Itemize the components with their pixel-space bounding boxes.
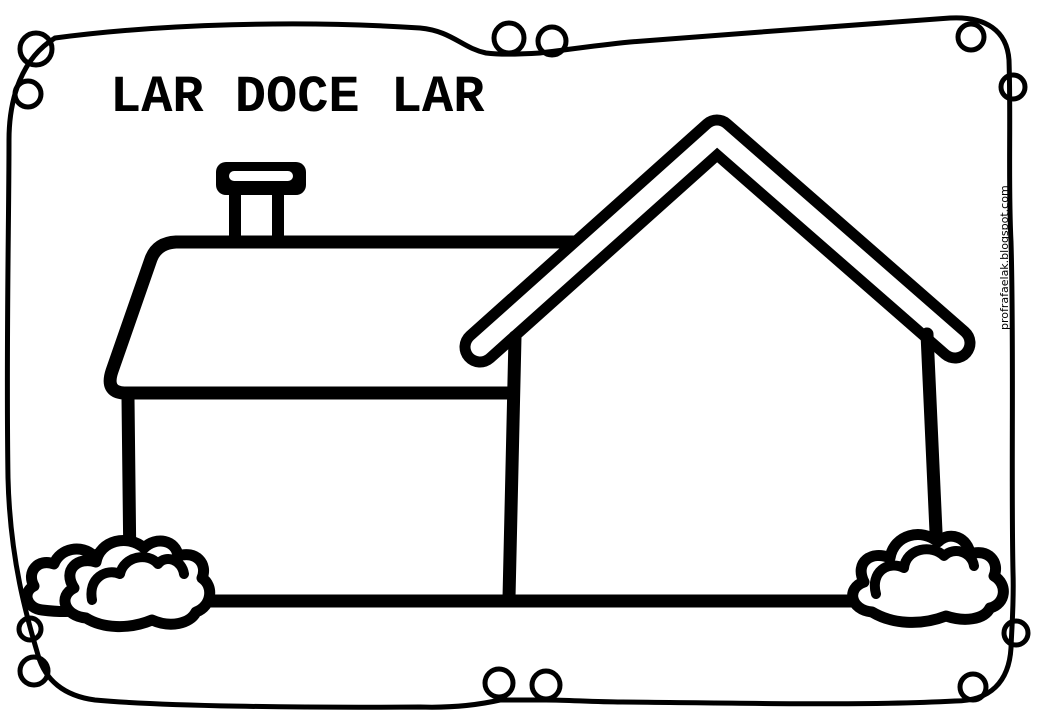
border-loop-right-top <box>1001 75 1025 99</box>
border-loop-top-left-2 <box>15 81 41 107</box>
house-drawing <box>27 135 1003 627</box>
chimney <box>216 162 306 246</box>
watermark-credit: profrafaelak.blogspot.com <box>998 148 1013 330</box>
border-loop-top-left-1 <box>20 33 52 65</box>
border-loop-top-mid-1 <box>494 23 524 53</box>
coloring-page: LAR DOCE LAR profrafaelak.blogspot.com <box>0 0 1040 720</box>
border-loop-bottom-mid-1 <box>532 671 560 699</box>
border-loop-bottom-mid-2 <box>485 669 513 697</box>
border-loop-top-right <box>958 24 984 50</box>
page-title: LAR DOCE LAR <box>110 68 590 127</box>
border-loop-right-bottom <box>1004 621 1028 645</box>
chimney-cap-slot <box>229 171 293 181</box>
large-house-interior <box>512 157 938 600</box>
border-loop-bottom-right <box>960 674 986 700</box>
large-house-left-wall <box>509 337 515 598</box>
